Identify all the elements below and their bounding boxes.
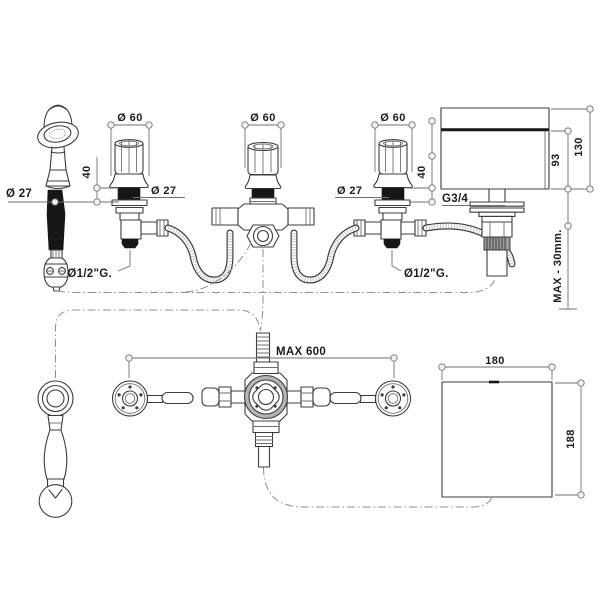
left-valve-hose (168, 228, 230, 280)
dim-label-inlet-right: Ø1/2"G. (404, 268, 449, 280)
dim-label-180: 180 (485, 355, 505, 367)
dim-label-130: 130 (573, 137, 585, 157)
spout-plan-view (442, 382, 552, 497)
dim-label-dia27-left-valve: Ø 27 (151, 185, 176, 197)
dim-label-g34: G3/4 (442, 193, 468, 205)
dim-label-40-right: 40 (416, 165, 428, 178)
dim-label-dia60-right: Ø 60 (380, 112, 405, 124)
right-valve-side-view (354, 140, 426, 248)
dim-label-max-deck: MAX - 30mm. (552, 229, 564, 302)
handshower-plan-view (38, 381, 73, 517)
right-valve-plan-view (330, 381, 411, 416)
dim-label-188: 188 (565, 429, 577, 449)
dim-label-dia27-shower: Ø 27 (6, 188, 32, 200)
right-valve-hose (294, 228, 356, 280)
faucet-dimension-drawing: Ø 60 Ø 60 Ø 60 40 40 Ø 27 Ø 27 Ø 27 G3/4… (0, 0, 600, 600)
spout-body-side-view (441, 108, 549, 276)
technical-drawing-page: Ø 60 Ø 60 Ø 60 40 40 Ø 27 Ø 27 Ø 27 G3/4… (0, 0, 600, 600)
handshower-side-view (36, 105, 81, 291)
dim-label-dia27-right-valve: Ø 27 (337, 185, 362, 197)
diverter-drop-centerline (261, 249, 264, 331)
dim-label-dia60-center: Ø 60 (250, 112, 275, 124)
dim-label-40-left: 40 (81, 165, 93, 178)
dim-label-max600: MAX 600 (276, 346, 326, 358)
dim-label-dia60-left: Ø 60 (117, 112, 142, 124)
dim-label-inlet-left: Ø1/2"G. (67, 268, 112, 280)
shower-plan-centerline (56, 310, 261, 378)
left-valve-plan-view (113, 381, 194, 416)
dim-label-93: 93 (550, 153, 562, 166)
